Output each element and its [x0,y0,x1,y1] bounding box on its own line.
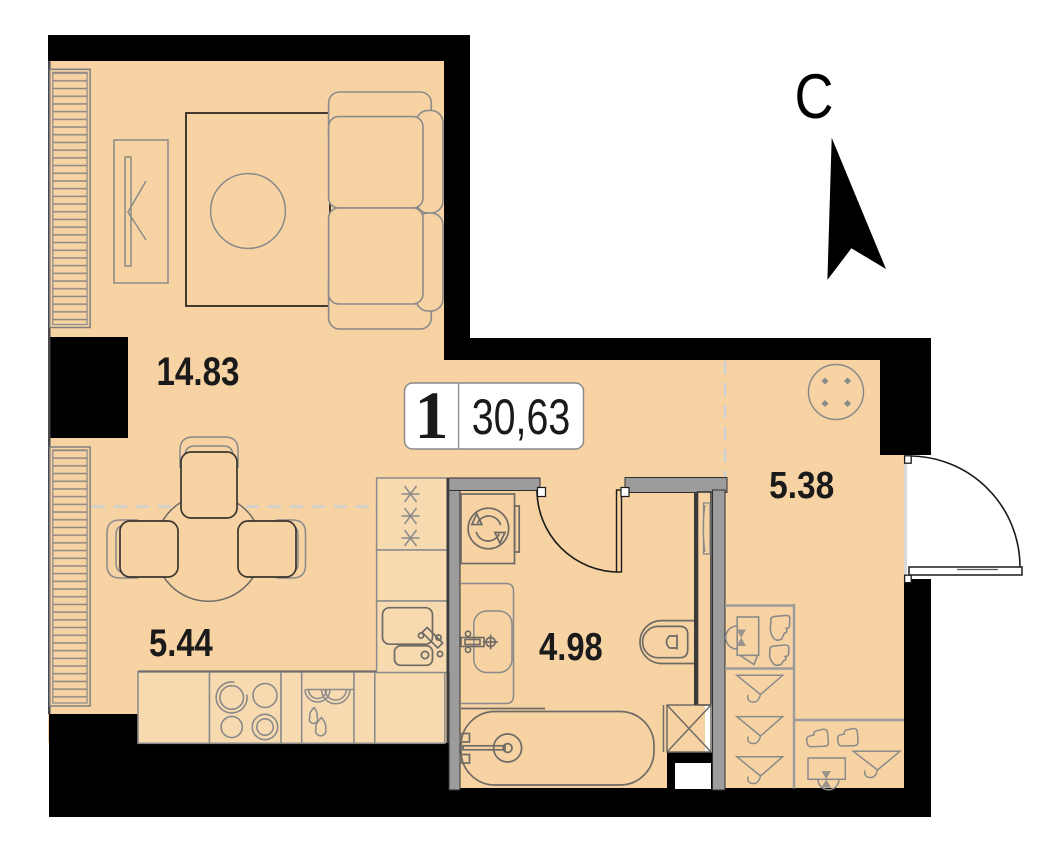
svg-text:5.38: 5.38 [769,464,834,506]
svg-text:4.98: 4.98 [539,624,603,668]
svg-text:30,63: 30,63 [472,388,571,445]
svg-text:1: 1 [415,377,449,453]
svg-text:14.83: 14.83 [156,349,239,393]
svg-text:С: С [794,62,833,132]
svg-text:5.44: 5.44 [149,620,213,664]
